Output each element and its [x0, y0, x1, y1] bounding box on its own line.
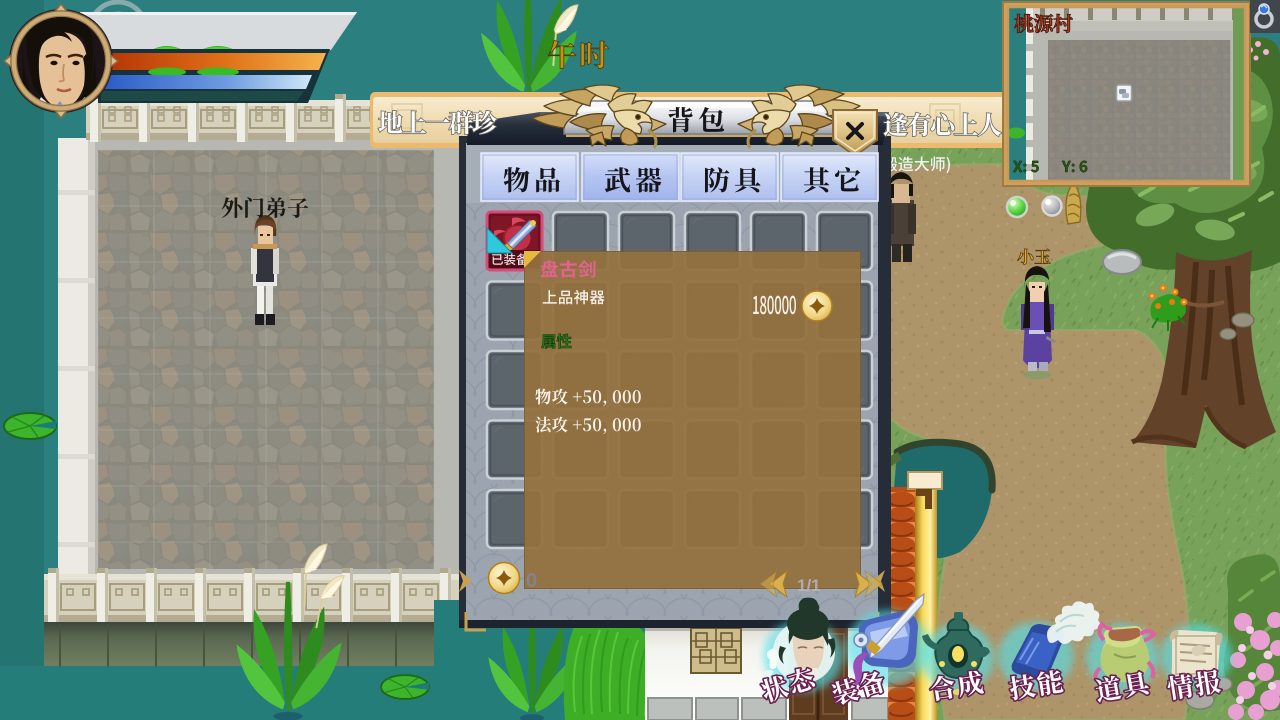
svg-text:0: 0: [526, 570, 537, 592]
svg-text:1/1: 1/1: [797, 576, 821, 595]
